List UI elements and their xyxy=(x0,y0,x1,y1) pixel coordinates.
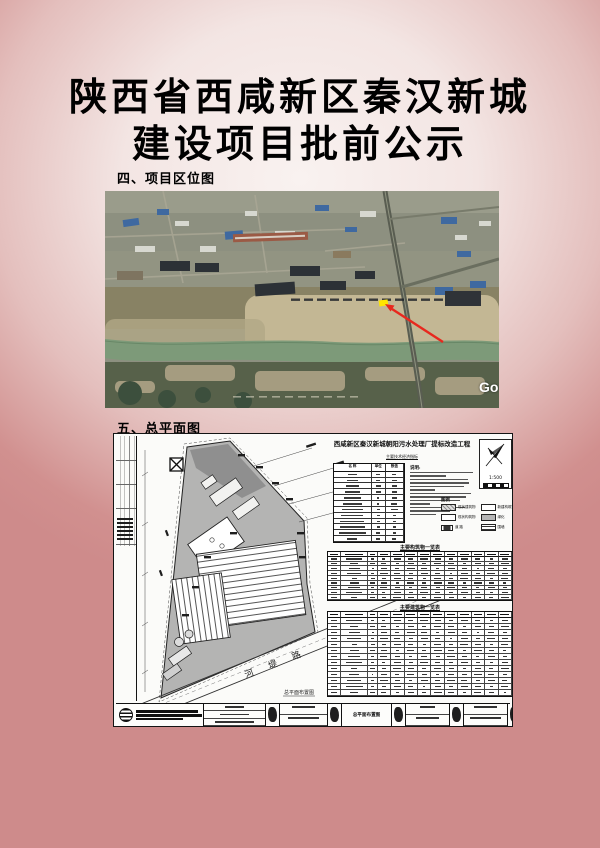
table-cell xyxy=(407,650,414,651)
table-cell xyxy=(420,554,429,555)
table-cell xyxy=(376,532,380,534)
table-cell xyxy=(280,704,327,715)
table-cell xyxy=(458,690,471,696)
note-line xyxy=(410,486,464,487)
table-cell xyxy=(477,632,479,633)
table-cell xyxy=(220,714,249,716)
table-cell xyxy=(409,573,413,574)
table-cell xyxy=(348,474,357,476)
table-cell xyxy=(331,638,336,639)
table-cell xyxy=(490,592,492,593)
table-cell xyxy=(405,595,418,600)
titleblock-cell xyxy=(508,704,513,726)
table-cell xyxy=(345,614,364,615)
table-cell xyxy=(380,554,389,555)
table-cell xyxy=(447,680,455,681)
sheet-name: 总平面布置图 xyxy=(342,704,391,726)
notice-title-line2: 建设项目批前公示 xyxy=(0,113,600,168)
table-cell xyxy=(372,568,374,569)
table-cell xyxy=(331,650,336,651)
table-cell xyxy=(475,644,481,645)
table-cell xyxy=(470,717,500,719)
table-cell xyxy=(458,595,471,600)
table-cell xyxy=(331,674,336,675)
table-cell xyxy=(381,568,387,569)
table-cell xyxy=(346,485,359,487)
table-cell xyxy=(341,595,369,600)
notes-label: 说明: xyxy=(410,465,476,471)
table-cell xyxy=(464,715,507,726)
legend-swatch-dark-icon xyxy=(441,525,453,531)
table-cell xyxy=(396,563,399,564)
table-cell xyxy=(391,503,397,505)
table-cell xyxy=(447,656,455,657)
table-cell xyxy=(462,656,467,657)
table-cell xyxy=(371,644,375,645)
table-cell xyxy=(331,626,336,627)
table-cell xyxy=(371,587,373,588)
section-label-location: 四、项目区位图 xyxy=(117,168,215,187)
table-cell xyxy=(330,614,338,615)
table-cell xyxy=(347,573,361,574)
table-cell xyxy=(382,578,386,579)
table-cell xyxy=(420,614,429,615)
title-block: 总平面布置图 xyxy=(116,703,510,726)
table-cell xyxy=(381,582,386,583)
table-cell xyxy=(503,568,507,569)
table-cell xyxy=(331,558,336,559)
table-cell xyxy=(502,662,508,663)
table-cell xyxy=(331,686,336,687)
table-cell xyxy=(341,515,363,517)
plan-subtitle: 主要技术经济指标 xyxy=(327,454,477,460)
table-cell xyxy=(391,690,404,696)
table-cell xyxy=(488,587,495,588)
table-cell xyxy=(346,686,363,687)
table-cell xyxy=(345,554,364,555)
legend-swatch-gray-icon xyxy=(481,514,496,521)
table-cell xyxy=(500,554,509,555)
table-cell xyxy=(490,662,492,663)
table-cell xyxy=(346,662,362,663)
table-cell xyxy=(499,595,512,600)
satellite-map-graphic xyxy=(105,191,499,408)
table-cell xyxy=(434,650,442,651)
table-cell xyxy=(392,497,398,499)
table-cell xyxy=(476,587,479,588)
note-line xyxy=(410,489,435,490)
titleblock-cell xyxy=(280,704,328,726)
table-cell xyxy=(436,587,440,588)
table-cell xyxy=(449,644,453,645)
table-cell xyxy=(488,568,494,569)
table-cell xyxy=(416,717,439,719)
table-cell xyxy=(421,568,427,569)
table-cell xyxy=(445,690,458,696)
table-cell xyxy=(423,686,426,687)
table-cell xyxy=(450,573,453,574)
table-cell xyxy=(381,563,386,564)
table-cell xyxy=(475,668,481,669)
titleblock-cell xyxy=(266,704,280,726)
table-cell xyxy=(381,674,387,675)
table-cell xyxy=(395,680,400,681)
note-line xyxy=(410,472,473,473)
table-cell xyxy=(463,563,466,564)
table-cell xyxy=(502,558,508,559)
table-cell xyxy=(393,521,396,523)
titleblock-cell xyxy=(204,704,266,726)
table-cell xyxy=(449,558,453,559)
table-cell xyxy=(371,558,375,559)
table-cell xyxy=(435,686,441,687)
table-cell xyxy=(370,582,375,583)
table-cell xyxy=(422,668,426,669)
table-cell xyxy=(475,597,481,598)
table-cell xyxy=(394,686,401,687)
legend-swatch-white-icon xyxy=(481,504,496,511)
table-cell xyxy=(433,614,442,615)
table-cell xyxy=(392,480,396,482)
table-cell xyxy=(503,582,506,583)
table-cell xyxy=(501,686,508,687)
table-cell xyxy=(476,573,480,574)
titleblock-cell xyxy=(406,704,450,726)
table-cell xyxy=(370,563,375,564)
legend-item: 围墙 xyxy=(481,524,514,531)
table-cell xyxy=(393,532,397,534)
note-line xyxy=(410,482,469,483)
table-cell xyxy=(489,582,494,583)
table-cell xyxy=(406,554,415,555)
table-cell xyxy=(328,690,341,696)
table-cell xyxy=(462,568,467,569)
table-cell xyxy=(351,668,358,669)
legend-label: 新建构筑物 xyxy=(498,505,514,510)
table-cell xyxy=(423,578,426,579)
table-cell xyxy=(331,587,336,588)
table-cell xyxy=(474,554,483,555)
table-cell xyxy=(405,690,418,696)
table-cell xyxy=(503,587,507,588)
table-cell xyxy=(350,582,359,583)
table-cell xyxy=(436,674,439,675)
table-cell xyxy=(502,620,508,621)
table-cell xyxy=(434,644,441,645)
table-cell xyxy=(345,491,360,493)
table-cell xyxy=(377,497,379,499)
table-cell xyxy=(463,692,466,693)
table-cell xyxy=(393,526,396,528)
stamp-mark xyxy=(510,707,513,723)
table-cell xyxy=(347,538,357,540)
table-cell xyxy=(370,626,375,627)
table-cell xyxy=(475,563,482,564)
table-cell xyxy=(434,578,441,579)
table-cell xyxy=(406,614,415,615)
table-cell xyxy=(463,650,467,651)
table-cell xyxy=(393,614,402,615)
table-cell xyxy=(408,644,413,645)
table-cell xyxy=(408,692,414,693)
table-cell xyxy=(225,706,243,708)
table-cell xyxy=(448,626,453,627)
table-cell xyxy=(370,597,374,598)
table-cell xyxy=(371,592,374,593)
table-cell xyxy=(488,680,495,681)
table-cell xyxy=(408,626,414,627)
table-cell xyxy=(371,656,373,657)
table-cell xyxy=(370,668,374,669)
table-cell xyxy=(448,582,454,583)
table-cell xyxy=(501,644,508,645)
table-cell xyxy=(280,715,327,726)
table-cell xyxy=(393,597,401,598)
table-cell xyxy=(376,485,381,487)
scale-bar xyxy=(483,483,509,488)
table-cell xyxy=(450,638,453,639)
table-cell xyxy=(406,704,449,715)
table-cell xyxy=(462,674,466,675)
table-cell xyxy=(340,521,364,523)
table-cell xyxy=(485,595,498,600)
table-cell xyxy=(377,515,380,517)
table-cell xyxy=(350,692,358,693)
table-cell xyxy=(463,582,467,583)
table-cell xyxy=(348,587,360,588)
table-cell xyxy=(488,632,494,633)
table-cell xyxy=(487,554,496,555)
table-cell xyxy=(381,626,386,627)
table-cell xyxy=(489,650,494,651)
institute-name-redacted xyxy=(136,709,203,722)
table-cell xyxy=(392,485,397,487)
table-cell xyxy=(487,614,496,615)
titleblock-cell xyxy=(464,704,508,726)
table-cell xyxy=(331,692,336,693)
table-cell xyxy=(350,563,357,564)
table-cell xyxy=(449,597,454,598)
table-cell xyxy=(394,620,401,621)
table-cell xyxy=(435,680,440,681)
table-cell xyxy=(349,674,359,675)
table-cell xyxy=(380,587,387,588)
stamp-mark xyxy=(394,707,402,723)
table-cell xyxy=(344,497,361,499)
table-cell xyxy=(475,558,480,559)
table-cell xyxy=(372,632,374,633)
table-cell xyxy=(476,592,481,593)
legend-swatch-striped-icon xyxy=(481,524,496,531)
table-cell xyxy=(488,674,494,675)
table-cell xyxy=(490,558,493,559)
table-cell xyxy=(331,620,336,621)
table-cell xyxy=(407,582,414,583)
table-cell xyxy=(331,644,336,645)
table-cell xyxy=(475,686,480,687)
table-cell xyxy=(421,587,427,588)
table-cell xyxy=(382,644,386,645)
table-cell xyxy=(346,558,362,559)
table-cell xyxy=(331,656,336,657)
table-cell xyxy=(461,680,467,681)
table-cell xyxy=(331,568,336,569)
table-cell xyxy=(395,632,399,633)
table-cell xyxy=(328,595,341,600)
table-cell xyxy=(434,563,442,564)
table-cell xyxy=(476,638,480,639)
table-cell xyxy=(418,595,431,600)
table-cell xyxy=(490,686,493,687)
table-cell xyxy=(477,568,479,569)
table-cell xyxy=(394,644,401,645)
table-cell xyxy=(394,662,400,663)
table-cell xyxy=(490,620,493,621)
table-cell xyxy=(485,690,498,696)
table-cell xyxy=(422,597,426,598)
table-cell xyxy=(475,620,480,621)
table-cell xyxy=(490,644,493,645)
table-cell xyxy=(382,592,385,593)
table-cell xyxy=(435,558,441,559)
table-cell xyxy=(436,632,439,633)
table-cell xyxy=(448,650,454,651)
table-cell xyxy=(476,680,480,681)
table-cell xyxy=(445,595,458,600)
table-cell xyxy=(396,626,399,627)
table-cell xyxy=(386,536,404,542)
table-cell xyxy=(449,668,454,669)
table-cell xyxy=(487,638,495,639)
table-cell xyxy=(448,568,455,569)
table-cell xyxy=(371,573,374,574)
table-cell xyxy=(349,568,360,569)
table-cell xyxy=(382,558,385,559)
table-cell xyxy=(463,597,466,598)
institute-logo-icon xyxy=(119,708,133,722)
table-cell xyxy=(368,690,377,696)
table-cell xyxy=(502,680,507,681)
table-cell xyxy=(431,690,444,696)
table-cell xyxy=(460,578,468,579)
plan-project-title: 西咸新区秦汉新城朝阳污水处理厂提标改造工程 xyxy=(327,441,477,448)
table-cell xyxy=(204,719,265,726)
table-cell xyxy=(420,662,428,663)
table-cell xyxy=(501,626,509,627)
table-cell xyxy=(409,587,412,588)
table-cell xyxy=(460,644,468,645)
table-cell xyxy=(393,668,401,669)
table-cell xyxy=(460,614,469,615)
table-cell xyxy=(378,690,391,696)
plan-corner-label: 总平面布置图 xyxy=(284,689,314,696)
table-cell xyxy=(331,662,336,663)
table-cell xyxy=(407,632,415,633)
table-cell xyxy=(461,662,468,663)
table-cell xyxy=(422,626,426,627)
table-cell xyxy=(382,668,386,669)
table-cell xyxy=(488,656,495,657)
indicator-header-cell: 数值 xyxy=(386,464,404,472)
table-cell xyxy=(330,554,338,555)
table-cell xyxy=(500,614,509,615)
table-cell xyxy=(368,595,377,600)
table-cell xyxy=(408,578,413,579)
table-cell xyxy=(350,626,357,627)
table-cell xyxy=(381,632,387,633)
table-cell xyxy=(475,578,481,579)
table-cell xyxy=(436,656,440,657)
table-cell xyxy=(461,620,468,621)
table-cell xyxy=(395,587,400,588)
titleblock-cell xyxy=(328,704,342,726)
table-cell xyxy=(340,526,366,528)
legend-label: 绿化 xyxy=(498,515,505,520)
table-cell xyxy=(371,686,375,687)
table-cell xyxy=(371,662,374,663)
table-cell xyxy=(394,558,401,559)
table-cell xyxy=(503,674,506,675)
table-cell xyxy=(380,680,388,681)
table-cell xyxy=(489,626,493,627)
table-cell xyxy=(331,563,336,564)
table-cell xyxy=(502,573,507,574)
table-cell xyxy=(392,538,396,540)
table-cell xyxy=(489,668,493,669)
structures-table-caption: 主要构筑物一览表 xyxy=(327,544,513,551)
table-cell xyxy=(422,563,426,564)
north-arrow-box: 1:500 xyxy=(479,439,512,489)
legend-label: 现状构筑物 xyxy=(458,515,476,520)
table-cell xyxy=(381,650,386,651)
table-cell xyxy=(382,620,385,621)
table-cell xyxy=(502,638,507,639)
table-cell xyxy=(421,632,427,633)
table-cell xyxy=(343,503,361,505)
table-cell xyxy=(380,656,387,657)
table-cell xyxy=(460,554,469,555)
notice-page: 陕西省西咸新区秦汉新城 建设项目批前公示 四、项目区位图 xyxy=(0,0,600,848)
table-cell xyxy=(339,532,367,534)
stamp-mark xyxy=(452,707,460,723)
table-cell xyxy=(376,491,381,493)
table-cell xyxy=(396,650,399,651)
table-cell xyxy=(331,592,336,593)
table-cell xyxy=(372,674,374,675)
table-cell xyxy=(331,578,336,579)
table-cell xyxy=(435,573,440,574)
table-cell xyxy=(292,706,314,708)
table-cell xyxy=(391,509,398,511)
table-cell xyxy=(435,638,440,639)
legend-item: 道 路 xyxy=(441,524,477,531)
table-cell xyxy=(463,668,466,669)
table-cell xyxy=(204,711,265,718)
table-cell xyxy=(409,638,413,639)
legend-swatch-hatch-icon xyxy=(441,504,456,511)
table-cell xyxy=(448,692,454,693)
table-cell xyxy=(434,582,442,583)
legend-title: 图例 xyxy=(441,497,513,503)
table-cell xyxy=(448,632,455,633)
table-cell xyxy=(352,578,357,579)
table-cell xyxy=(380,573,388,574)
legend-label: 围墙 xyxy=(498,525,505,530)
table-cell xyxy=(449,662,452,663)
table-cell xyxy=(461,558,468,559)
table-cell xyxy=(382,662,385,663)
table-cell xyxy=(474,650,481,651)
